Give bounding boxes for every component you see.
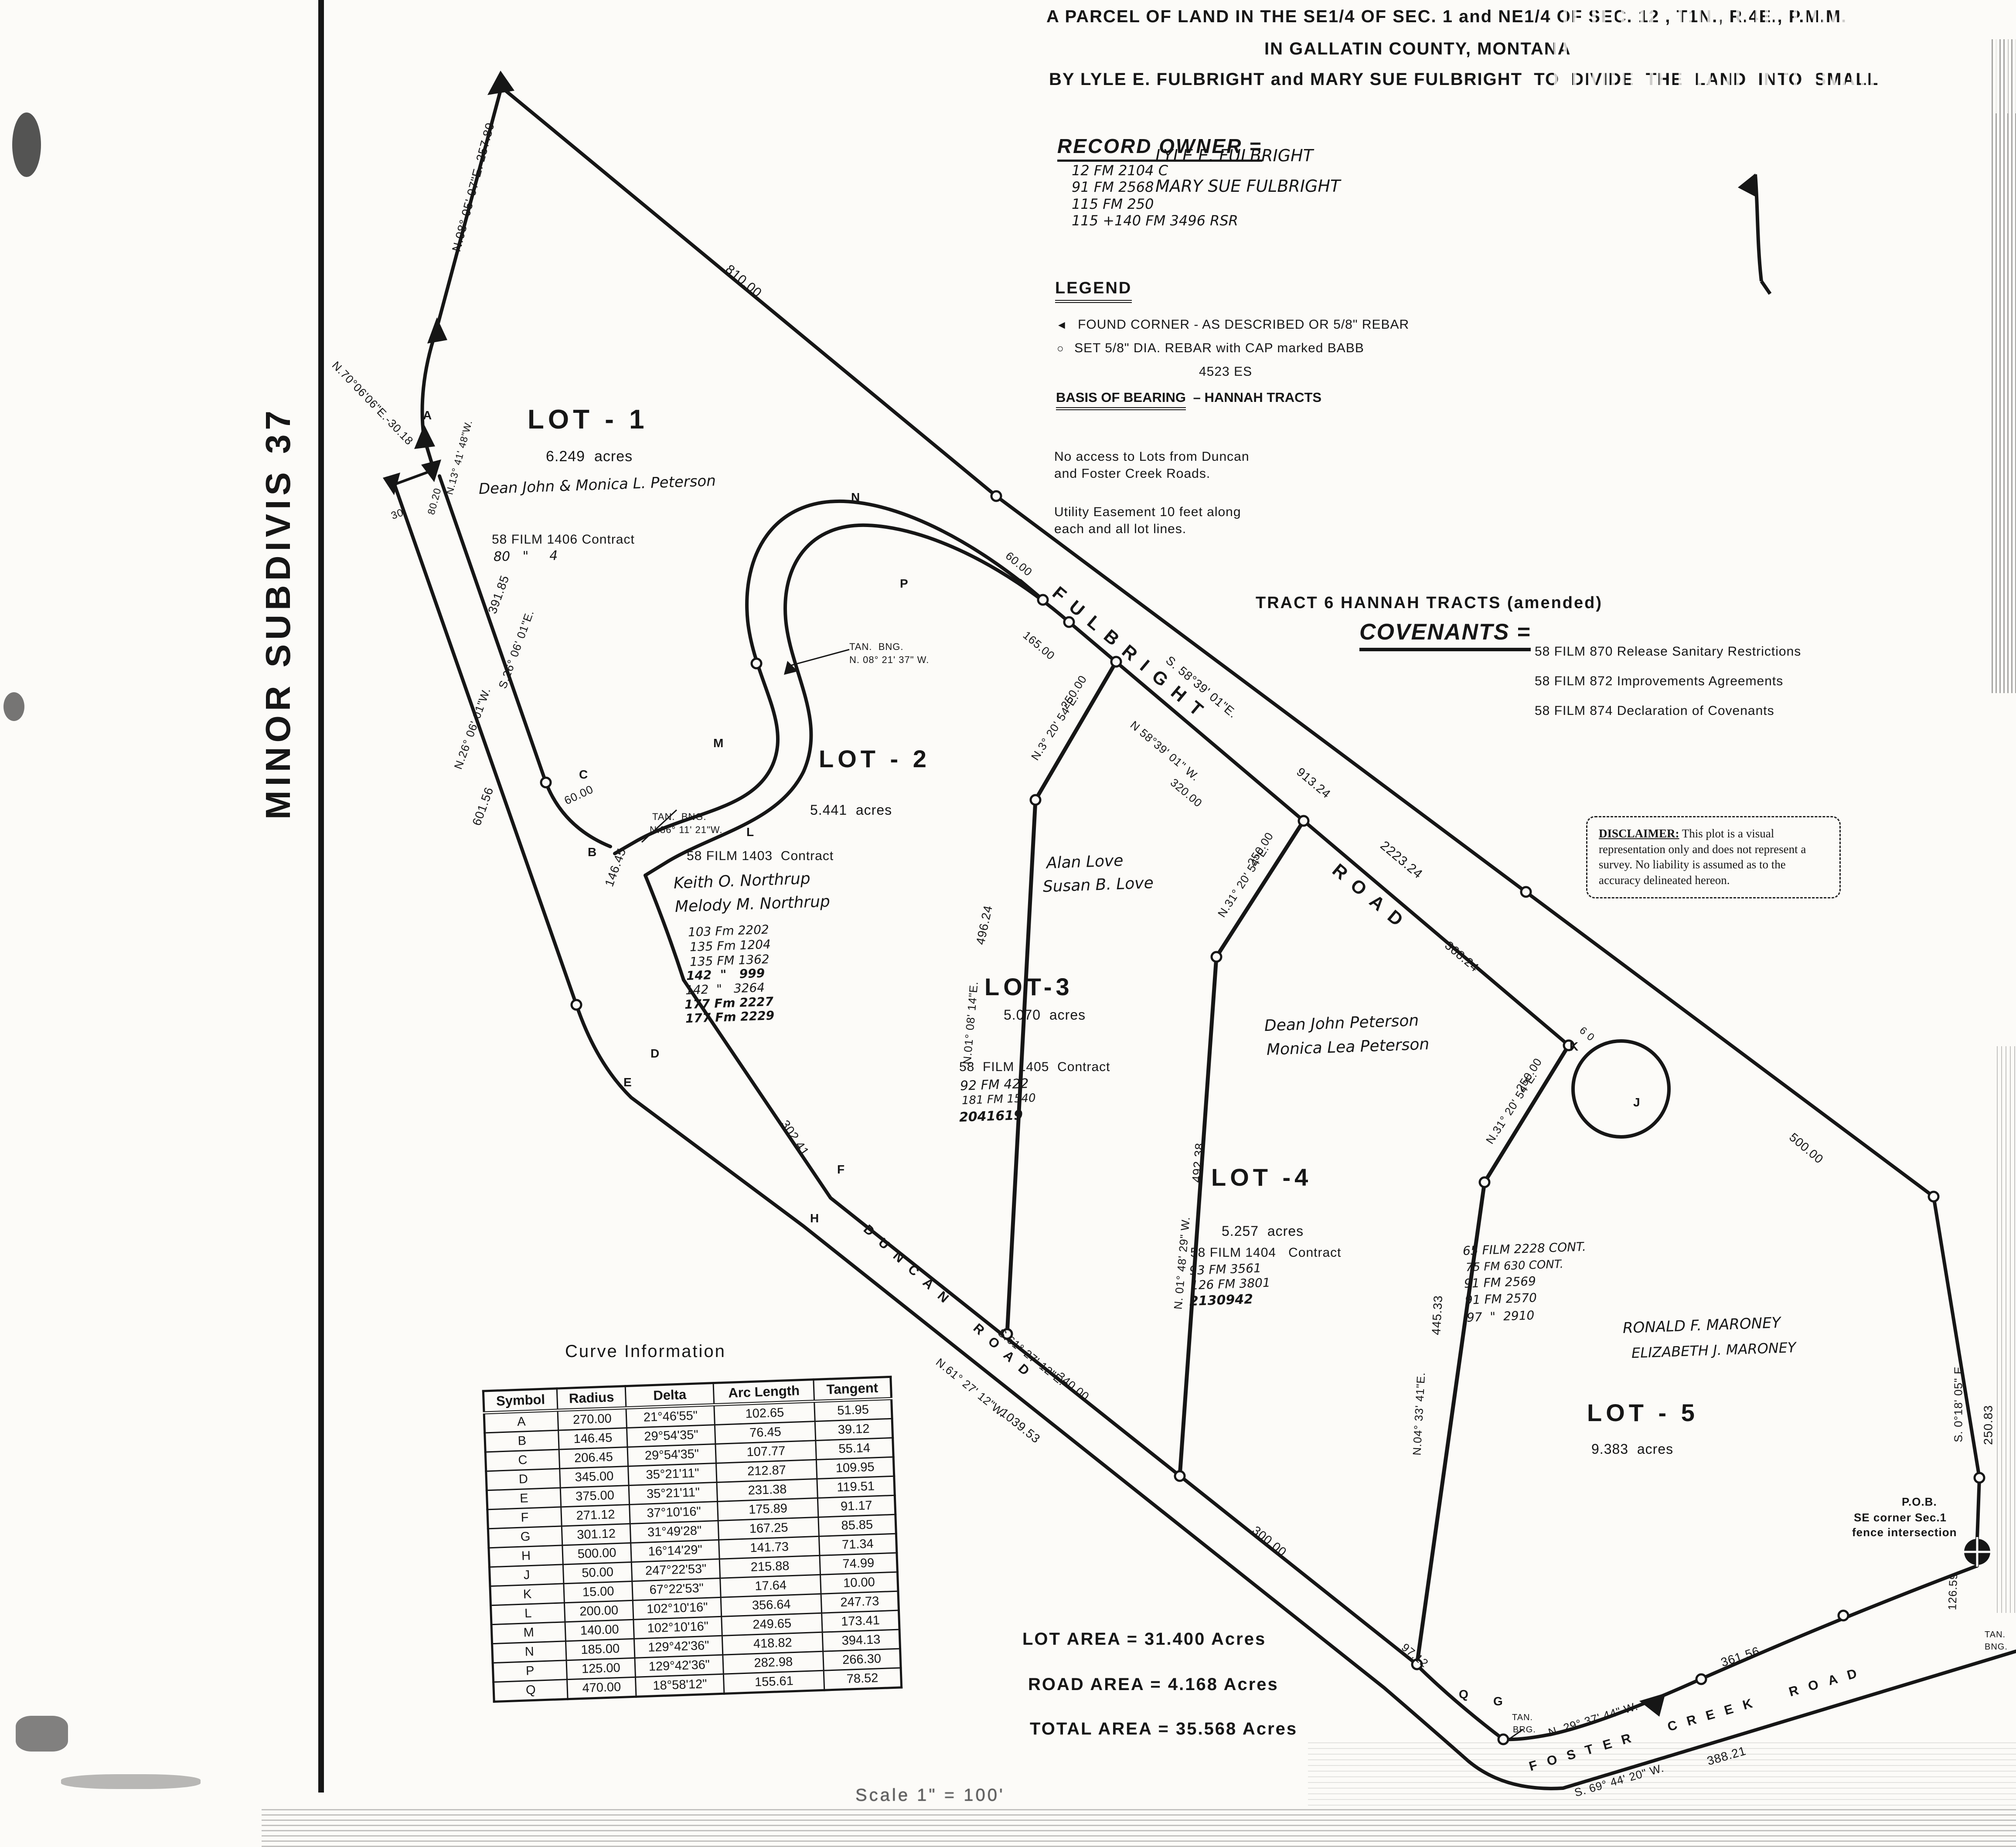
side-label: MINOR SUBDIVIS 37 — [258, 406, 298, 820]
title-line-2: IN GALLATIN COUNTY, MONTANA — [1264, 39, 1571, 59]
area-summary-line: TOTAL AREA = 35.568 Acres — [1030, 1719, 1297, 1739]
curve-table-cell: 10.00 — [821, 1572, 898, 1594]
map-label: LOT - 1 — [528, 405, 648, 434]
map-label: LOT -4 — [1211, 1165, 1312, 1191]
map-label: 181 FM 1540 — [962, 1092, 1036, 1107]
curve-table-cell: M — [491, 1622, 565, 1644]
record-owner-name: LYLE E. FULBRIGHT — [1155, 140, 1340, 171]
curve-table-cell: 266.30 — [823, 1649, 901, 1670]
area-summary-line: ROAD AREA = 4.168 Acres — [1028, 1675, 1279, 1694]
curve-table-cell: 21°46'55" — [626, 1405, 715, 1428]
map-label: 445.33 — [1430, 1295, 1444, 1335]
map-label: N — [851, 491, 860, 503]
map-label: 177 Fm 2229 — [685, 1009, 774, 1025]
map-label: 93 FM 3561 — [1189, 1262, 1261, 1277]
curve-table-cell: 146.45 — [558, 1428, 628, 1449]
map-label: 9.383 acres — [1591, 1442, 1673, 1457]
curve-table-cell: K — [490, 1584, 564, 1605]
record-owner-film: 115 +140 FM 3496 RSR — [1072, 212, 1238, 229]
curve-table-cell: 102.65 — [714, 1401, 815, 1425]
disclaimer-box: DISCLAIMER: This plot is a visual repres… — [1586, 816, 1841, 898]
cul-de-sac-bulb — [1573, 1041, 1669, 1137]
covenants-heading: COVENANTS = — [1359, 619, 1531, 651]
map-label: LOT - 5 — [1587, 1400, 1699, 1426]
map-label: LOT-3 — [984, 974, 1073, 1000]
map-label: P — [900, 577, 908, 590]
map-label: 58 FILM 1406 Contract — [492, 533, 635, 547]
curve-table-cell: P — [493, 1660, 567, 1682]
map-label: 92 FM 422 — [960, 1077, 1029, 1093]
curve-table-cell: 140.00 — [565, 1619, 634, 1641]
curve-table-header: Radius — [557, 1386, 626, 1410]
map-label: K — [1570, 1040, 1578, 1053]
curve-table-cell: 15.00 — [564, 1581, 633, 1602]
map-label: Susan B. Love — [1042, 875, 1154, 895]
curve-table-cell: C — [485, 1449, 559, 1471]
curve-table-cell: 129°42'36" — [634, 1636, 723, 1658]
curve-table-cell: 271.12 — [561, 1504, 630, 1526]
curve-table-header: Tangent — [814, 1377, 891, 1401]
map-label: S. 0°18' 05" E. — [1952, 1363, 1964, 1442]
curve-table-cell: 37°10'16" — [630, 1501, 718, 1524]
map-label: 2041619 — [959, 1109, 1023, 1125]
curve-table-cell: 247°22'53" — [632, 1559, 720, 1581]
map-label: BNG. — [1985, 1643, 2008, 1652]
map-label: BRG. — [1513, 1725, 1536, 1735]
curve-table-cell: 185.00 — [565, 1639, 635, 1660]
disclaimer-heading: DISCLAIMER: — [1599, 827, 1679, 840]
map-label: 5.257 acres — [1222, 1224, 1304, 1239]
map-label: 91 FM 2569 — [1464, 1275, 1536, 1290]
curve-table-cell: 74.99 — [820, 1553, 897, 1575]
map-label: J — [1633, 1096, 1640, 1109]
map-label: 142 " 3264 — [685, 981, 765, 997]
map-label: 5.441 acres — [810, 803, 892, 818]
map-label: 58 FILM 1403 Contract — [687, 849, 834, 863]
map-label: 6.249 acres — [546, 449, 633, 465]
curve-table-cell: E — [487, 1488, 561, 1510]
curve-table-cell: 500.00 — [562, 1543, 632, 1564]
scan-blob — [12, 112, 41, 177]
curve-table-cell: 345.00 — [560, 1466, 629, 1488]
curve-table-cell: 78.52 — [824, 1668, 902, 1690]
curve-table-cell: 173.41 — [822, 1610, 899, 1632]
pob-text-line: SE corner Sec.1 — [1854, 1511, 1947, 1524]
survey-drawing — [0, 0, 2016, 1847]
curve-table-header: Symbol — [483, 1388, 558, 1413]
title-line-3: BY LYLE E. FULBRIGHT and MARY SUE FULBRI… — [1049, 70, 1879, 89]
curve-table-cell: 85.85 — [818, 1514, 896, 1536]
curve-table-cell: 91.17 — [818, 1495, 896, 1517]
legend-item-text: FOUND CORNER - AS DESCRIBED OR 5/8" REBA… — [1078, 317, 1409, 332]
record-owner-names: LYLE E. FULBRIGHTMARY SUE FULBRIGHT — [1155, 140, 1340, 202]
scanned-plat-page: MINOR SUBDIVIS 37 A PARCEL OF LAND IN TH… — [0, 0, 2016, 1847]
map-label: N.86° 11' 21"W. — [650, 825, 722, 835]
scan-blob — [3, 692, 24, 721]
map-label: 126 FM 3801 — [1190, 1276, 1270, 1292]
map-label: C — [579, 768, 588, 781]
curve-table-cell: 470.00 — [567, 1677, 637, 1699]
map-label: 126.59 — [1946, 1573, 1959, 1610]
curve-table-cell: 31°49'28" — [630, 1520, 719, 1543]
area-summary-line: LOT AREA = 31.400 Acres — [1022, 1629, 1266, 1649]
record-owner-name: MARY SUE FULBRIGHT — [1155, 171, 1340, 201]
tract-note: TRACT 6 HANNAH TRACTS (amended) — [1256, 594, 1603, 612]
north-arrow-icon — [1738, 173, 1770, 294]
found-corner-icon: ◄ — [1056, 318, 1067, 331]
legend-item-text2: 4523 ES — [1199, 364, 1252, 379]
set-rebar-icon: ○ — [1057, 342, 1064, 355]
curve-table-cell: 67°22'53" — [632, 1578, 721, 1600]
curve-table-cell: 51.95 — [814, 1398, 892, 1421]
curve-table-cell: L — [491, 1603, 565, 1625]
curve-table-cell: F — [487, 1507, 562, 1529]
map-label: TAN. BNG. — [849, 642, 904, 652]
curve-table-cell: 119.51 — [817, 1476, 895, 1498]
curve-table-cell: J — [489, 1565, 563, 1586]
map-label: 5.070 acres — [1004, 1008, 1086, 1023]
curve-information-table: SymbolRadiusDeltaArc LengthTangent A270.… — [482, 1376, 902, 1703]
curve-table-cell: 200.00 — [564, 1600, 633, 1622]
scan-blob — [16, 1716, 68, 1752]
curve-table-cell: 301.12 — [562, 1524, 631, 1545]
curve-table-cell: 102°10'16" — [633, 1616, 722, 1639]
s-road-east-edge — [645, 525, 1069, 875]
basis-of-bearing-label: BASIS OF BEARING — [1056, 390, 1186, 410]
fulbright-road-sw-line-b — [1069, 622, 1569, 1045]
curve-table-cell: 129°42'36" — [635, 1655, 723, 1677]
curve-table-cell: B — [485, 1430, 559, 1452]
map-label: 103 Fm 2202 — [688, 923, 769, 939]
curve-table-header: Arc Length — [713, 1380, 814, 1405]
pob-text-line: P.O.B. — [1902, 1495, 1937, 1509]
map-label: 250.83 — [1982, 1405, 1994, 1445]
map-label: L — [746, 826, 754, 838]
basis-of-bearing-value: – HANNAH TRACTS — [1193, 390, 1322, 405]
left-border-rule — [318, 0, 324, 1793]
scan-blob — [61, 1774, 201, 1789]
title-line-1: A PARCEL OF LAND IN THE SE1/4 OF SEC. 1 … — [1046, 7, 1847, 27]
map-label: G — [1493, 1695, 1503, 1708]
map-label: Alan Love — [1046, 853, 1124, 872]
pob-monument-icon — [1962, 1537, 1992, 1567]
map-label: 135 Fm 1204 — [689, 938, 771, 954]
curve-table-cell: G — [488, 1526, 562, 1548]
map-label: F — [837, 1163, 845, 1176]
covenant-item: 58 FILM 870 Release Sanitary Restriction… — [1535, 644, 1801, 659]
map-label: D — [650, 1047, 659, 1060]
curve-table-cell: 109.95 — [817, 1457, 894, 1479]
curve-table-cell: 155.61 — [724, 1670, 825, 1694]
map-label: A — [423, 409, 432, 422]
map-label: H — [810, 1212, 819, 1225]
curve-table-cell: 375.00 — [560, 1486, 630, 1507]
curve-table-cell: 29°54'35" — [627, 1444, 716, 1466]
note-text: Utility Easement 10 feet along each and … — [1054, 503, 1259, 537]
curve-table-cell: A — [484, 1410, 558, 1433]
map-label: 58 FILM 1405 Contract — [959, 1060, 1110, 1074]
curve-table-cell: 39.12 — [815, 1418, 893, 1440]
curve-table-cell: 270.00 — [558, 1408, 627, 1430]
tangent-leader-1 — [788, 650, 849, 666]
covenant-item: 58 FILM 874 Declaration of Covenants — [1535, 704, 1774, 718]
curve-table-cell: N — [492, 1641, 566, 1663]
note-text: No access to Lots from Duncan and Foster… — [1054, 448, 1259, 482]
map-label: 91 FM 2570 — [1464, 1291, 1537, 1306]
legend-heading: LEGEND — [1055, 279, 1132, 303]
curve-table-cell: 102°10'16" — [633, 1597, 722, 1619]
map-label: TAN. — [1512, 1713, 1533, 1722]
map-label: E — [623, 1076, 632, 1088]
curve-table-cell: 71.34 — [819, 1534, 897, 1555]
map-label: B — [588, 846, 596, 858]
pob-text-line: fence intersection — [1852, 1526, 1957, 1539]
map-label: TAN. — [1985, 1630, 2006, 1640]
map-label: 2130942 — [1189, 1293, 1253, 1309]
curve-table-cell: 35°21'11" — [628, 1463, 717, 1485]
map-label: TAN. BNG. — [652, 812, 707, 822]
map-label: N. 08° 21' 37" W. — [849, 655, 929, 665]
curve-table-cell: 50.00 — [563, 1562, 632, 1583]
curve-table-cell: 394.13 — [823, 1629, 900, 1651]
curve-table-cell: D — [486, 1469, 560, 1490]
legend-item-text: SET 5/8" DIA. REBAR with CAP marked BABB — [1074, 341, 1364, 355]
curve-table-title: Curve Information — [565, 1342, 726, 1361]
scale-note: Scale 1" = 100' — [855, 1786, 1005, 1805]
map-label: 58 FILM 1404 Contract — [1190, 1246, 1342, 1260]
curve-table-cell: 18°58'12" — [636, 1674, 724, 1697]
curve-table-cell: 35°21'11" — [629, 1482, 717, 1504]
curve-table-header: Delta — [625, 1383, 714, 1408]
curve-table-cell: H — [489, 1545, 563, 1567]
curve-table-cell: 16°14'29" — [631, 1540, 719, 1562]
map-label: M — [713, 737, 723, 749]
s-road-west-edge — [615, 501, 1043, 854]
map-label: 97 " 2910 — [1466, 1309, 1534, 1324]
covenant-item: 58 FILM 872 Improvements Agreements — [1535, 674, 1783, 689]
curve-table-cell: 206.45 — [559, 1447, 628, 1469]
map-label: 142 " 999 — [686, 967, 765, 983]
curve-table-cell: 29°54'35" — [627, 1425, 715, 1447]
curve-table-cell: 55.14 — [816, 1438, 893, 1459]
map-label: 80 " 4 — [494, 549, 558, 564]
curve-table-cell: 125.00 — [566, 1658, 636, 1679]
map-label: LOT - 2 — [819, 746, 930, 772]
curve-table-cell: Q — [494, 1680, 568, 1702]
map-label: Q — [1459, 1688, 1468, 1701]
curve-table-cell: 247.73 — [821, 1591, 899, 1613]
